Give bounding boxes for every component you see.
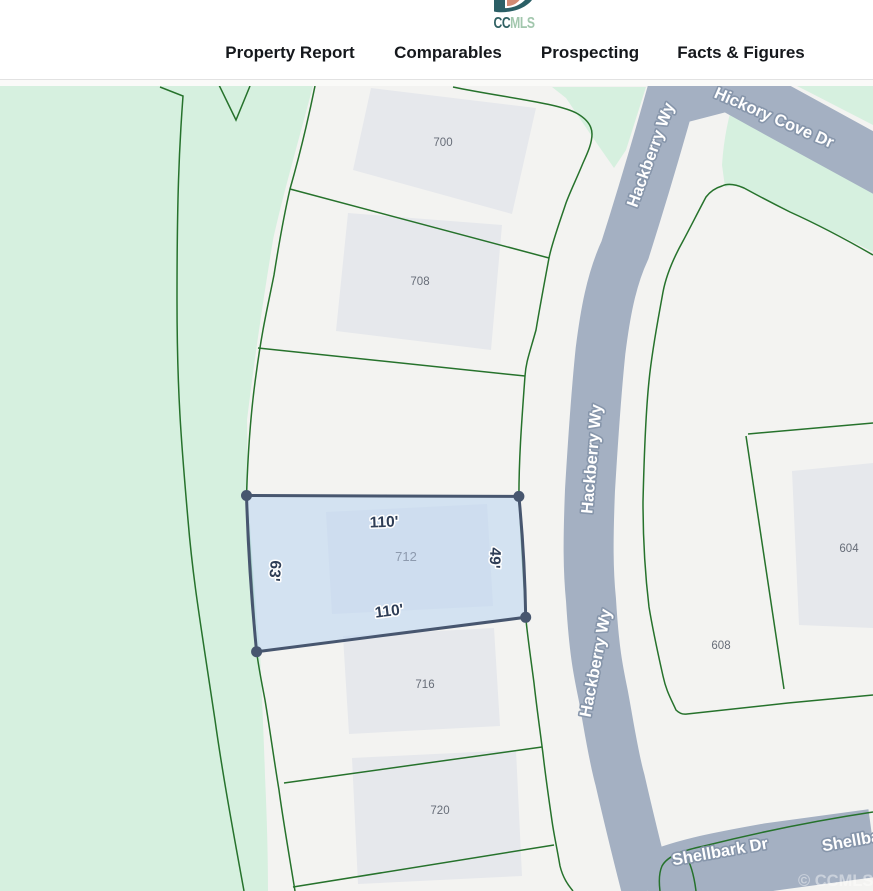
svg-text:720: 720 bbox=[430, 805, 449, 817]
svg-text:708: 708 bbox=[410, 276, 429, 288]
svg-text:700: 700 bbox=[433, 137, 452, 149]
svg-text:110': 110' bbox=[374, 601, 405, 621]
svg-text:63': 63' bbox=[265, 560, 283, 582]
svg-text:608: 608 bbox=[711, 640, 730, 652]
svg-text:604: 604 bbox=[839, 543, 859, 555]
svg-text:110': 110' bbox=[369, 514, 398, 532]
svg-text:716: 716 bbox=[415, 679, 434, 691]
svg-text:© CCMLS: © CCMLS bbox=[798, 872, 873, 890]
svg-text:49': 49' bbox=[485, 547, 503, 569]
svg-text:712: 712 bbox=[395, 549, 417, 564]
